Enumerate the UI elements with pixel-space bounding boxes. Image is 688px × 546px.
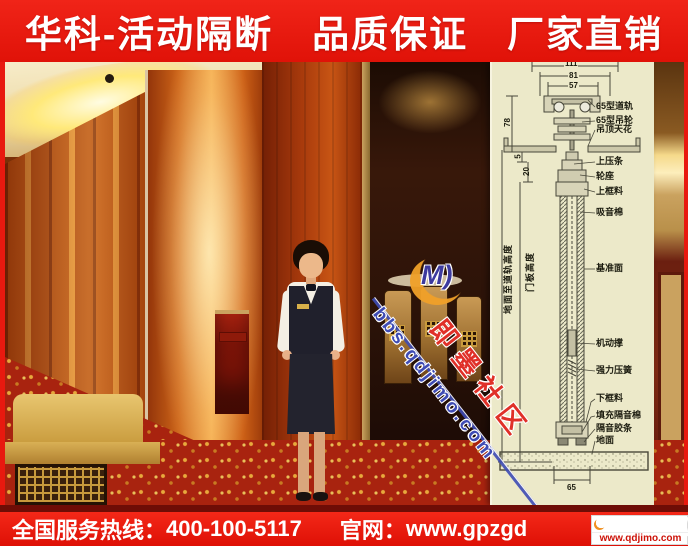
dome-camera [105,74,114,83]
dim-81: 81 [568,71,579,80]
chair-lattice [425,321,441,337]
dim-top-outer: 111 [564,62,578,68]
right-corridor [652,62,684,505]
dim-78: 78 [503,117,512,128]
mirror-frame [362,62,370,505]
label-floor: 地面 [596,435,654,446]
shoe [313,492,328,501]
label-fill-cotton: 填充隔音棉 [596,410,654,421]
gold-armchair [5,392,160,505]
banquet-room-doorway [370,62,490,505]
bottom-banner: 全国服务热线： 400-100-5117 官网： www.gpzgd M) 即墨… [0,512,688,546]
partition-section-diagram: 111 81 57 78 5 20 65 地面至道轨高度 门板高度 65型道轨 … [490,62,654,505]
label-motor-brace: 机动撑 [596,338,654,349]
red-cabinet [215,310,249,414]
chair-lattice [461,331,477,347]
name-badge [297,304,309,309]
divider-strip [0,505,688,512]
corner-logo-row: M) 即墨信息港 [594,517,687,532]
hotline-label: 全国服务热线： [12,513,166,545]
website-url: www.gpzgd [406,516,527,542]
leg [298,432,309,494]
website-label: 官网： [340,513,406,545]
banquet-chair [384,290,412,384]
top-banner: 华科-活动隔断 品质保证 厂家直销 [0,0,688,62]
partition-ad-poster: 华科-活动隔断 品质保证 厂家直销 [0,0,688,546]
dim-65: 65 [566,483,577,492]
attendant-figure [271,240,351,505]
corner-logo-crescent-icon [594,519,605,530]
armchair-seat [5,442,160,464]
chair-lattice [389,325,405,341]
hotline-phone: 400-100-5117 [166,516,302,542]
label-bottom-frame: 下框料 [596,393,654,404]
banquet-chair [420,286,448,380]
leg [314,432,325,494]
label-ceiling: 吊顶天花 [596,124,654,135]
cabinet-drawer [219,332,247,342]
skirt [287,354,335,434]
label-top-strip: 上压条 [596,156,654,167]
corner-logo-url: www.qdjimo.com [592,532,688,544]
dim-5: 5 [514,153,523,159]
shoe [296,492,311,501]
label-wheel-seat: 轮座 [596,171,654,182]
face [299,253,323,278]
chandelier-glow [378,70,482,134]
qdjimo-corner-logo: M) 即墨信息港 www.qdjimo.com [591,515,688,545]
label-datum-face: 基准面 [596,263,654,274]
dim-label-floor-to-track: 地面至道轨高度 [501,244,514,314]
dim-20: 20 [522,166,531,177]
dim-57: 57 [568,81,579,90]
bow-tie [306,284,316,291]
banquet-chair [456,296,482,382]
label-top-frame: 上框料 [596,186,654,197]
label-track: 65型道轨 [596,101,654,112]
armchair-lattice [15,464,107,505]
top-banner-text: 华科-活动隔断 品质保证 厂家直销 [25,4,663,58]
label-rubber-strip: 隔音胶条 [596,423,654,434]
label-spring: 强力压簧 [596,365,654,376]
label-acoustic-cotton: 吸音棉 [596,207,654,218]
wood-door-panel [658,272,684,448]
dim-label-door-height: 门板高度 [523,252,536,292]
showroom-photo: 111 81 57 78 5 20 65 地面至道轨高度 门板高度 65型道轨 … [5,62,684,505]
